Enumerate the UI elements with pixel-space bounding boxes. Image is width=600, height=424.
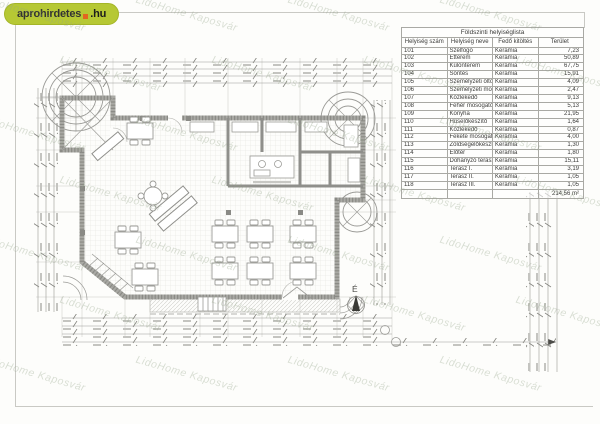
- total-area: 214,56 m²: [538, 189, 584, 199]
- kitchen-label-smudge: [253, 181, 291, 183]
- room-name: Szélfogó: [447, 47, 493, 55]
- room-finish: Kerámia: [493, 110, 539, 118]
- room-row: 107KözlekedőKerámia9,13: [402, 94, 584, 102]
- room-row: 101SzélfogóKerámia7,23: [402, 47, 584, 55]
- room-row: 114ElőtérKerámia1,80: [402, 150, 584, 158]
- room-row: 110HúselőkészítőKerámia1,64: [402, 118, 584, 126]
- room-name: Terasz I.: [447, 166, 493, 174]
- room-row: 112Fekete mosogatóKerámia4,00: [402, 134, 584, 142]
- room-area: 5,13: [538, 102, 584, 110]
- room-name: Dohányzó terasz: [447, 158, 493, 166]
- room-num: 111: [402, 126, 448, 134]
- room-area: 1,30: [538, 142, 584, 150]
- room-num: 104: [402, 71, 448, 79]
- terrace-area: [150, 299, 340, 312]
- room-name: Fehér mosogató: [447, 102, 493, 110]
- stairs-entry: [198, 297, 226, 311]
- aprohirdetes-logo[interactable]: aprohirdetes .hu: [4, 3, 119, 25]
- room-table-total-row: 214,56 m²: [402, 189, 584, 199]
- room-name: Fekete mosogató: [447, 134, 493, 142]
- room-area: 21,95: [538, 110, 584, 118]
- room-finish: Kerámia: [493, 94, 539, 102]
- room-name: Étterem: [447, 55, 493, 63]
- room-num: 107: [402, 94, 448, 102]
- room-table-header: Helyiség szám Helyiség neve Fedő kitölté…: [402, 38, 584, 48]
- room-finish: Kerámia: [493, 126, 539, 134]
- room-row: 105Személyzeti öltözőKerámia4,09: [402, 79, 584, 87]
- room-num: 105: [402, 79, 448, 87]
- room-num: 109: [402, 110, 448, 118]
- room-name: Terasz II.: [447, 174, 493, 182]
- room-row: 115Dohányzó teraszKerámia15,11: [402, 158, 584, 166]
- room-row: 108Fehér mosogatóKerámia5,13: [402, 102, 584, 110]
- room-name: Közlekedő: [447, 94, 493, 102]
- col-header-finish: Fedő kitöltés: [493, 38, 539, 48]
- room-name: Személyzeti öltöző: [447, 79, 493, 87]
- room-area: 4,09: [538, 79, 584, 87]
- room-finish: Kerámia: [493, 118, 539, 126]
- room-row: 113ZöldségelőkészítőKerámia1,30: [402, 142, 584, 150]
- room-row: 111KözlekedőKerámia0,87: [402, 126, 584, 134]
- room-num: 110: [402, 118, 448, 126]
- room-finish: Kerámia: [493, 150, 539, 158]
- room-finish: Kerámia: [493, 158, 539, 166]
- room-row: 117Terasz II.Kerámia1,05: [402, 174, 584, 182]
- room-area: 2,47: [538, 87, 584, 95]
- logo-text: aprohirdetes: [17, 8, 81, 20]
- room-finish: Kerámia: [493, 47, 539, 55]
- room-row: 116Terasz I.Kerámia3,19: [402, 166, 584, 174]
- room-finish: Kerámia: [493, 134, 539, 142]
- porch-arc-left: [63, 276, 87, 300]
- room-area: 15,91: [538, 71, 584, 79]
- room-area: 7,23: [538, 47, 584, 55]
- room-row: 103KülönteremKerámia67,75: [402, 63, 584, 71]
- room-finish: Kerámia: [493, 166, 539, 174]
- room-num: 114: [402, 150, 448, 158]
- room-name: Söntés: [447, 71, 493, 79]
- room-area: 67,75: [538, 63, 584, 71]
- room-name: Előtér: [447, 150, 493, 158]
- room-num: 118: [402, 181, 448, 189]
- room-area: 1,05: [538, 174, 584, 182]
- room-num: 113: [402, 142, 448, 150]
- room-num: 112: [402, 134, 448, 142]
- room-row: 102ÉtteremKerámia50,89: [402, 55, 584, 63]
- room-row: 104SöntésKerámia15,91: [402, 71, 584, 79]
- room-finish: Kerámia: [493, 102, 539, 110]
- room-area: 0,87: [538, 126, 584, 134]
- room-table-body: Földszinti helyiséglista Helyiség szám H…: [402, 28, 584, 199]
- room-name: Személyzeti mosdó: [447, 87, 493, 95]
- col-header-number: Helyiség szám: [402, 38, 448, 48]
- room-name: Zöldségelőkészítő: [447, 142, 493, 150]
- room-num: 106: [402, 87, 448, 95]
- room-row: 109KonyhaKerámia21,95: [402, 110, 584, 118]
- room-area: 15,11: [538, 158, 584, 166]
- room-num: 108: [402, 102, 448, 110]
- room-list-table: Földszinti helyiséglista Helyiség szám H…: [401, 27, 584, 199]
- room-name: Különterem: [447, 63, 493, 71]
- room-name: Konyha: [447, 110, 493, 118]
- room-num: 115: [402, 158, 448, 166]
- room-finish: Kerámia: [493, 181, 539, 189]
- room-area: 1,80: [538, 150, 584, 158]
- logo-tld: .hu: [90, 8, 106, 20]
- room-area: 3,19: [538, 166, 584, 174]
- room-num: 116: [402, 166, 448, 174]
- room-num: 101: [402, 47, 448, 55]
- room-num: 117: [402, 174, 448, 182]
- room-name: Húselőkészítő: [447, 118, 493, 126]
- room-finish: Kerámia: [493, 55, 539, 63]
- room-num: 103: [402, 63, 448, 71]
- room-finish: Kerámia: [493, 174, 539, 182]
- room-name: Terasz III.: [447, 181, 493, 189]
- room-finish: Kerámia: [493, 71, 539, 79]
- room-table-title: Földszinti helyiséglista: [402, 28, 584, 38]
- north-label: É: [352, 284, 358, 294]
- col-header-area: Terület: [538, 38, 584, 48]
- room-area: 1,64: [538, 118, 584, 126]
- room-finish: Kerámia: [493, 79, 539, 87]
- room-finish: Kerámia: [493, 142, 539, 150]
- col-header-name: Helyiség neve: [447, 38, 493, 48]
- room-area: 4,00: [538, 134, 584, 142]
- room-area: 50,89: [538, 55, 584, 63]
- room-finish: Kerámia: [493, 63, 539, 71]
- room-area: 9,13: [538, 94, 584, 102]
- room-row: 118Terasz III.Kerámia1,05: [402, 181, 584, 189]
- room-area: 1,05: [538, 181, 584, 189]
- room-num: 102: [402, 55, 448, 63]
- room-row: 106Személyzeti mosdóKerámia2,47: [402, 87, 584, 95]
- room-finish: Kerámia: [493, 87, 539, 95]
- room-name: Közlekedő: [447, 126, 493, 134]
- logo-dot-icon: [83, 14, 88, 19]
